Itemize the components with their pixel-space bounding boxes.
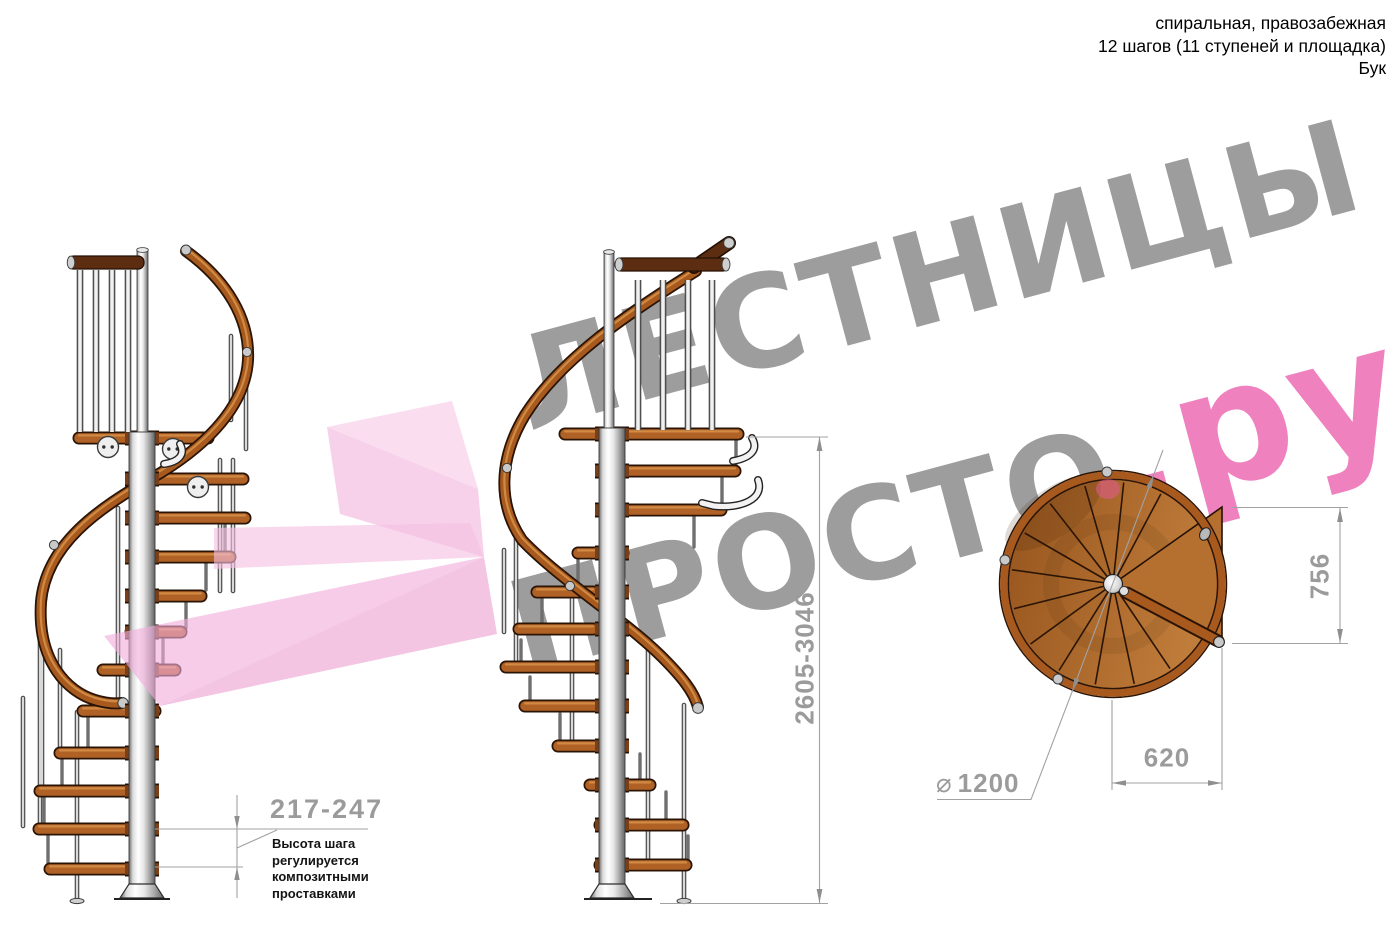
handrail-connector [1000, 555, 1010, 565]
step-height-dimension: 217-247 [270, 794, 383, 825]
center-pole-upper [137, 250, 148, 435]
rail-bar-cap [722, 258, 730, 271]
baluster-foot [677, 898, 691, 903]
stair-type-label: спиральная, правозабежная [1098, 12, 1386, 35]
baluster [504, 530, 684, 899]
drawing-page: ЛЕСТНИЦЫ ПРОСТО.ру [0, 0, 1400, 950]
railing-tube-shine [80, 270, 128, 432]
base-flange [590, 884, 634, 898]
middle-staircase-side-view [502, 238, 759, 904]
base-flange [120, 884, 164, 898]
step-height-note: Высота шага регулируется композитными пр… [272, 836, 369, 902]
baluster-foot [70, 898, 84, 903]
handrail-connector [565, 581, 574, 590]
connector-plate [188, 477, 209, 498]
center-pole [599, 428, 625, 884]
handrail-connector [49, 540, 58, 549]
top-rail-bar [68, 256, 144, 269]
pole-knob [1120, 587, 1129, 596]
rail-bar-cap [615, 258, 623, 271]
watermark-dot [1096, 479, 1120, 499]
title-block: спиральная, правозабежная 12 шагов (11 с… [1098, 12, 1386, 80]
diameter-dimension: ⌀1200 [936, 768, 1020, 799]
platform-depth-dimension: 756 [1305, 553, 1336, 599]
handrail-end-cap [693, 703, 704, 714]
left-staircase-side-view [23, 245, 252, 904]
platform-width-dimension: 620 [1144, 743, 1190, 774]
baluster-highlight [504, 530, 684, 899]
diameter-value: 1200 [958, 768, 1020, 798]
technical-drawing [0, 0, 1400, 950]
total-height-dimension: 2605-3046 [790, 591, 821, 724]
handrail-end-cap [1214, 637, 1225, 648]
railing-tube [80, 270, 128, 432]
handrail-connector [242, 347, 251, 356]
handrail-connector [1102, 467, 1112, 477]
railing-tube-outline [80, 270, 128, 432]
diameter-icon: ⌀ [936, 769, 953, 799]
handrail-connector [502, 463, 511, 472]
pole-top-cap [137, 248, 149, 253]
pole-top-cap [604, 250, 615, 255]
center-pole-upper [604, 252, 614, 432]
steps-count-label: 12 шагов (11 ступеней и площадка) [1098, 35, 1386, 58]
top-rail-bar [615, 258, 729, 271]
handrail-end-cap [181, 245, 191, 255]
handrail-connector [1053, 674, 1063, 684]
connector-plate [98, 437, 119, 458]
material-label: Бук [1098, 57, 1386, 80]
rail-bar-cap [67, 256, 75, 269]
rail-bar-cap [724, 238, 735, 249]
